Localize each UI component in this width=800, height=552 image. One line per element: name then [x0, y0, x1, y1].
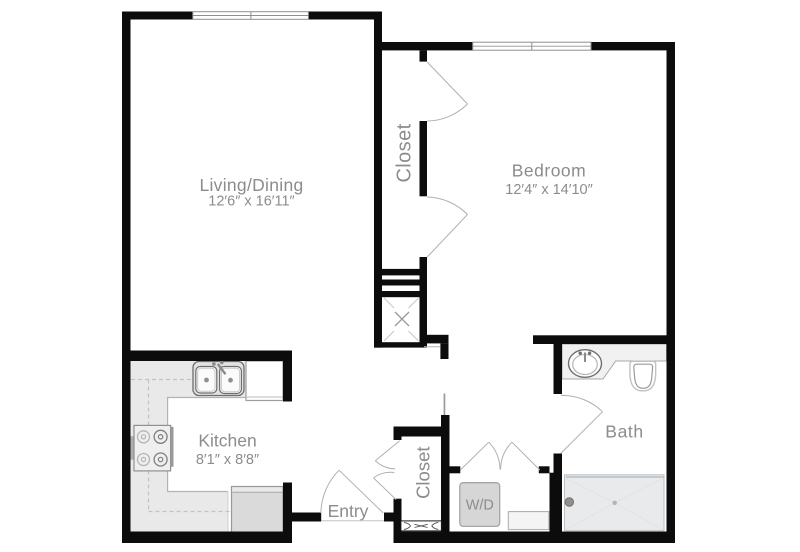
svg-text:Kitchen: Kitchen — [198, 431, 256, 451]
svg-text:Bedroom: Bedroom — [512, 161, 587, 181]
svg-text:Bath: Bath — [605, 422, 643, 442]
svg-text:Closet: Closet — [394, 123, 416, 182]
svg-text:Living/Dining: Living/Dining — [199, 175, 303, 195]
svg-text:W/D: W/D — [466, 498, 494, 514]
svg-text:12′4″ x 14′10″: 12′4″ x 14′10″ — [505, 182, 592, 198]
svg-text:Closet: Closet — [413, 446, 434, 498]
svg-text:8′1″ x 8′8″: 8′1″ x 8′8″ — [196, 452, 259, 468]
svg-text:12′6″ x 16′11″: 12′6″ x 16′11″ — [208, 194, 294, 210]
svg-text:Entry: Entry — [328, 501, 369, 521]
